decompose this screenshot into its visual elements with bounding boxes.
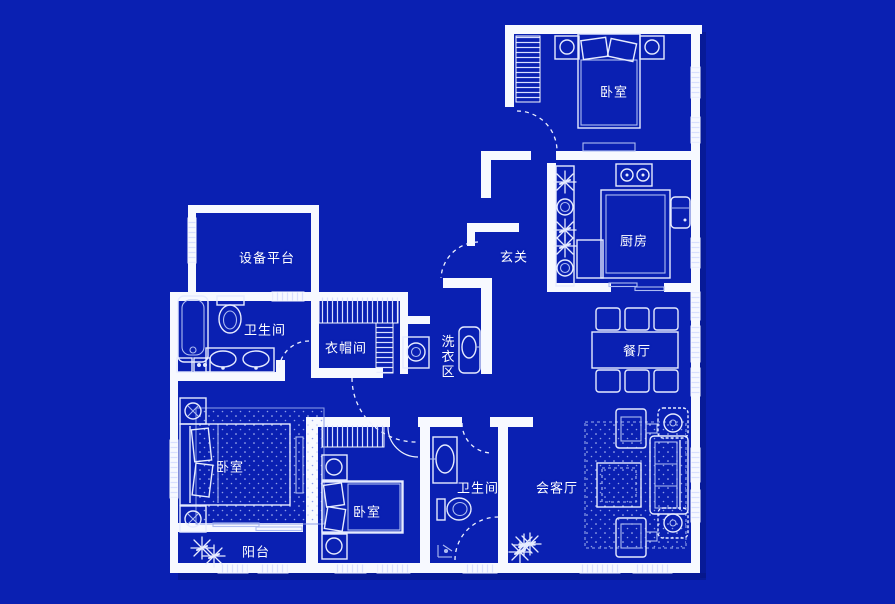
floor-plan-drawing	[0, 0, 895, 604]
cloakroom-shelves	[376, 323, 393, 373]
pillow	[324, 507, 345, 532]
room-label-equipment: 设备平台	[239, 248, 295, 267]
lamp-icon	[560, 40, 574, 54]
plant-icon	[203, 545, 225, 567]
dining-chair	[625, 370, 649, 392]
drain-icon	[190, 347, 196, 353]
dining-chair	[654, 308, 678, 330]
cabinet	[194, 358, 210, 372]
room-label-bedroom-top: 卧室	[600, 82, 628, 101]
kitchen-sliding-door	[609, 283, 664, 291]
room-label-dining: 餐厅	[623, 341, 651, 360]
dining-chair	[654, 370, 678, 392]
sink-icon	[436, 445, 454, 473]
room-label-bathroom-main: 卫生间	[244, 320, 286, 339]
room-label-bedroom-middle: 卧室	[353, 502, 381, 521]
lamp-icon	[645, 40, 659, 54]
room-label-living: 会客厅	[536, 478, 578, 497]
room-label-bathroom-second: 卫生间	[457, 478, 499, 497]
kitchen-cabinet	[577, 240, 603, 278]
room-label-balcony: 阳台	[242, 542, 270, 561]
lamp-icon	[326, 459, 342, 475]
bedroom-middle-wardrobe	[322, 425, 384, 447]
room-label-bedroom-left: 卧室	[216, 457, 244, 476]
bathroom-second-door-arc	[462, 423, 492, 453]
sink-icon	[557, 199, 573, 215]
floor-plan-canvas: 卧室 厨房 玄关 设备平台 卫生间 衣帽间 洗衣区 餐厅 卧室 卧室 卫生间 会…	[0, 0, 895, 604]
bedroom-top-wardrobe	[516, 36, 540, 102]
fridge	[671, 197, 690, 228]
washer-door-icon	[407, 343, 425, 361]
pillow	[324, 483, 345, 507]
pillow	[581, 37, 608, 59]
kitchen-furniture	[554, 164, 690, 286]
tv-cabinet	[583, 143, 635, 151]
toilet-tank	[437, 499, 445, 520]
pillow	[607, 38, 636, 61]
shower-curtain-arc	[455, 517, 498, 560]
bedroom-top-door-arc	[517, 111, 557, 151]
dining-chair	[625, 308, 649, 330]
floor-drain-icon	[438, 545, 452, 557]
cloakroom-rack	[319, 297, 398, 323]
room-label-kitchen: 厨房	[620, 231, 648, 250]
entry-door-arc	[441, 242, 478, 278]
plant-icon	[519, 533, 541, 555]
lamp-icon	[326, 538, 342, 554]
bedroom-left-furniture	[180, 398, 324, 532]
sink-icon	[243, 351, 269, 367]
dining-chair	[596, 308, 620, 330]
plant-icon	[554, 235, 576, 257]
room-label-entrance: 玄关	[500, 247, 528, 266]
sink-icon	[557, 260, 573, 276]
room-label-cloakroom: 衣帽间	[325, 338, 367, 357]
bathroom-second-furniture	[430, 437, 471, 557]
room-label-laundry: 洗衣区	[438, 335, 457, 380]
dining-chair	[596, 370, 620, 392]
sink-icon	[210, 351, 236, 367]
plant-icon	[554, 171, 576, 193]
